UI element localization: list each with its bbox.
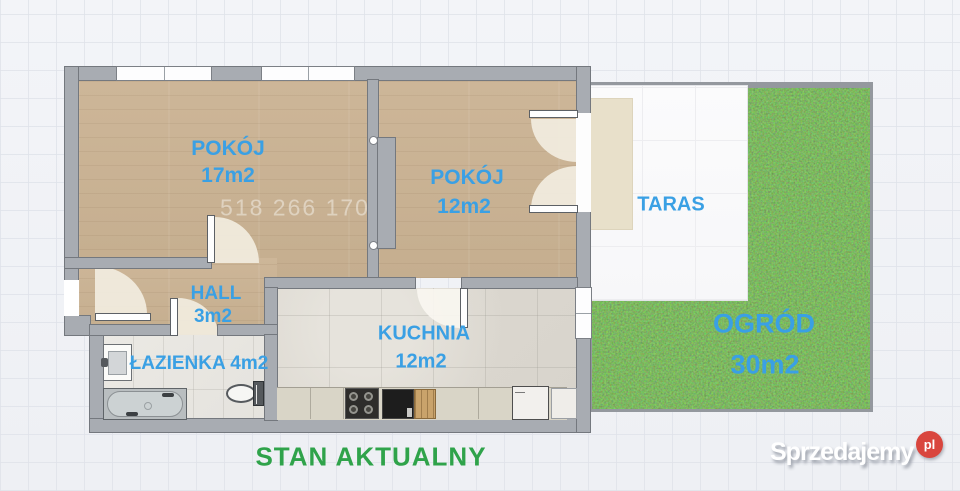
- wall-partition-block: [378, 138, 395, 248]
- french-doorway: [576, 113, 591, 212]
- bathtub-basin: [107, 391, 183, 417]
- bathtub-drain: [144, 402, 152, 410]
- burner: [349, 405, 358, 414]
- sprzedajemy-logo: Sprzedajemy pl: [770, 438, 913, 467]
- room1-door-leaf: [207, 215, 215, 263]
- toilet-tank: [253, 381, 264, 406]
- window-kitchen-right: [575, 287, 592, 339]
- wall-bathroom-left: [90, 325, 103, 432]
- wall-right-upper: [577, 67, 590, 113]
- wall-joint-dot-top: [369, 136, 378, 145]
- wall-right-middle: [577, 212, 590, 288]
- kitchen-label: KUCHNIA: [378, 323, 470, 346]
- wall-bottom: [90, 419, 590, 432]
- burner: [364, 392, 373, 401]
- faucet-icon: [407, 408, 412, 417]
- garden-label: OGRÓD: [713, 309, 815, 340]
- bathroom-area: 4m2: [230, 353, 268, 374]
- kitchen-sink-icon: [382, 389, 414, 419]
- wall-joint-dot-bottom: [369, 241, 378, 250]
- wall-left: [65, 67, 78, 280]
- burner: [364, 405, 373, 414]
- wall-right-lower: [577, 338, 590, 432]
- bathroom-sink-icon: [103, 344, 132, 381]
- logo-text: Sprzedajemy: [770, 438, 913, 466]
- toilet-icon: [226, 384, 256, 403]
- bathtub-icon: [103, 388, 187, 420]
- window-room1-left: [116, 66, 212, 81]
- window-mullion: [576, 313, 591, 314]
- fridge-icon: [512, 386, 549, 420]
- wall-bathroom-right: [265, 335, 277, 420]
- entry-door-leaf: [95, 313, 151, 321]
- room1-label: POKÓJ: [191, 137, 265, 161]
- kitchen-area-label: 12m2: [395, 351, 446, 374]
- bathtub-fitting: [126, 412, 138, 416]
- window-room1-right: [261, 66, 355, 81]
- wall-left-stub: [65, 316, 90, 335]
- french-door-leaf-top: [529, 110, 578, 118]
- room2-area-label: 12m2: [437, 195, 491, 219]
- garden-area-label: 30m2: [730, 350, 799, 381]
- hall-area-label: 3m2: [194, 306, 232, 328]
- burner: [349, 392, 358, 401]
- window-mullion: [164, 67, 165, 80]
- fridge-handle: [515, 392, 525, 393]
- wall-kitchen-top-right: [462, 278, 577, 288]
- toilet-tank-line: [256, 385, 257, 404]
- wall-room1-bottom: [65, 258, 211, 268]
- bathroom-label: ŁAZIENKA 4m2: [130, 353, 269, 375]
- terrace-label: TARAS: [637, 194, 704, 217]
- french-door-leaf-bottom: [529, 205, 578, 213]
- room1-area-label: 17m2: [201, 164, 255, 188]
- wall-bathroom-top-left: [90, 325, 175, 335]
- bathroom-name: ŁAZIENKA: [130, 353, 225, 374]
- counter-divider: [478, 388, 479, 419]
- counter-divider: [343, 388, 344, 419]
- faucet-icon: [101, 358, 108, 367]
- logo-pl-badge: pl: [916, 431, 943, 458]
- room2-label: POKÓJ: [430, 166, 504, 190]
- plan-caption: STAN AKTUALNY: [255, 442, 486, 473]
- cutting-board-icon: [414, 389, 436, 419]
- cabinet-white: [551, 388, 577, 419]
- counter-divider: [310, 388, 311, 419]
- stove-icon: [345, 388, 379, 419]
- sink-basin: [108, 351, 127, 375]
- wall-kitchen-top-left: [265, 278, 415, 288]
- phone-watermark: 518 266 170: [220, 195, 370, 222]
- window-mullion: [308, 67, 309, 80]
- bathtub-fitting: [162, 393, 174, 397]
- bathroom-door-leaf: [170, 298, 178, 336]
- terrace-rug: [590, 99, 632, 229]
- entry-doorway: [64, 280, 79, 316]
- hall-label: HALL: [191, 283, 242, 305]
- floor-plan-canvas: POKÓJ 17m2 POKÓJ 12m2 TARAS HALL 3m2 ŁAZ…: [0, 0, 960, 491]
